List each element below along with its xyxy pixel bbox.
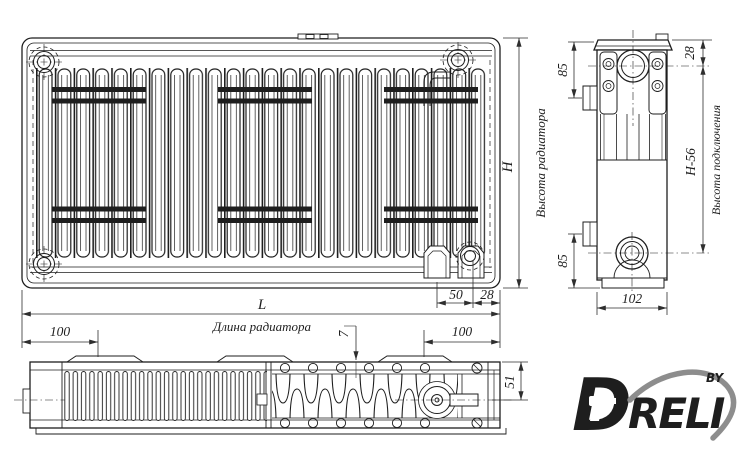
front-fin-field bbox=[36, 68, 487, 258]
dim-28-side: 28 bbox=[682, 46, 697, 60]
dim-28-front: 28 bbox=[480, 287, 494, 302]
dim-height-label: H bbox=[500, 160, 516, 173]
dim-50: 50 bbox=[449, 287, 463, 302]
dim-85-top: 85 bbox=[555, 63, 570, 77]
top-tab bbox=[298, 34, 338, 39]
dim-85-bottom: 85 bbox=[555, 254, 570, 268]
dim-length-label: L bbox=[257, 297, 266, 313]
caption-height: Высота радиатора bbox=[533, 108, 548, 218]
dim-100-left: 100 bbox=[50, 324, 71, 339]
grille-slots bbox=[63, 370, 267, 422]
dim-100-right: 100 bbox=[452, 324, 473, 339]
logo-dreli: D RELI BY bbox=[572, 363, 734, 447]
radiator-drawing-page: H Высота радиатора 50 28 L Длина радиато… bbox=[0, 0, 740, 465]
dim-51: 51 bbox=[502, 375, 517, 389]
logo-suffix: BY bbox=[706, 371, 724, 385]
dim-102: 102 bbox=[622, 291, 643, 306]
caption-length: Длина радиатора bbox=[211, 319, 312, 334]
dim-7: 7 bbox=[336, 329, 351, 337]
radiator-technical-drawing: H Высота радиатора 50 28 L Длина радиато… bbox=[0, 0, 740, 465]
front-view bbox=[22, 34, 500, 288]
caption-connection: Высота подключения bbox=[709, 104, 723, 215]
bottom-view bbox=[14, 356, 512, 434]
dim-h56: H-56 bbox=[683, 148, 698, 177]
logo-brand-rest: RELI bbox=[628, 389, 725, 438]
